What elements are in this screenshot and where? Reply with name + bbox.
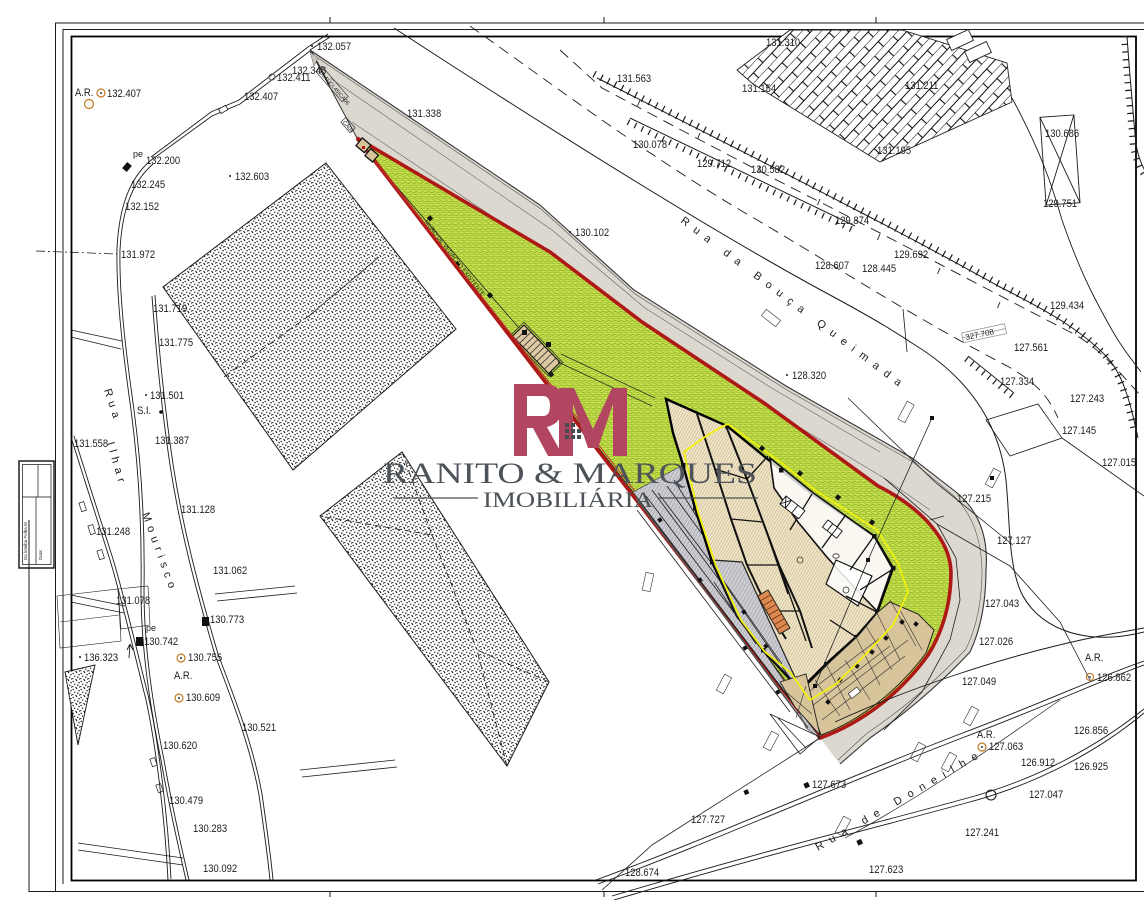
svg-text:132.152: 132.152 xyxy=(125,201,159,213)
svg-text:132.603: 132.603 xyxy=(235,171,269,183)
svg-text:131.558: 131.558 xyxy=(74,438,108,450)
svg-text:132.200: 132.200 xyxy=(146,155,180,167)
svg-text:131.195: 131.195 xyxy=(877,145,911,157)
svg-text:132.407: 132.407 xyxy=(244,91,278,103)
svg-text:127.049: 127.049 xyxy=(962,676,996,688)
svg-text:A.R.: A.R. xyxy=(75,87,93,99)
svg-text:127.561: 127.561 xyxy=(1014,342,1048,354)
svg-text:127.241: 127.241 xyxy=(965,827,999,839)
svg-text:S.I.: S.I. xyxy=(137,405,151,417)
svg-text:Da loteiba Folha M: Da loteiba Folha M xyxy=(23,522,28,560)
svg-text:126.925: 126.925 xyxy=(1074,761,1108,773)
svg-text:131.248: 131.248 xyxy=(96,526,130,538)
svg-text:130.742: 130.742 xyxy=(144,636,178,648)
svg-text:A.R.: A.R. xyxy=(1085,652,1103,664)
svg-text:131.154: 131.154 xyxy=(742,83,776,95)
svg-text:130.521: 130.521 xyxy=(242,722,276,734)
svg-text:132.245: 132.245 xyxy=(131,179,165,191)
svg-text:127.334: 127.334 xyxy=(1000,376,1034,388)
svg-text:131.387: 131.387 xyxy=(155,435,189,447)
svg-text:127.047: 127.047 xyxy=(1029,789,1063,801)
svg-text:A.R.: A.R. xyxy=(977,729,995,741)
svg-text:pe: pe xyxy=(146,623,156,633)
svg-text:127.043: 127.043 xyxy=(985,598,1019,610)
svg-text:130.686: 130.686 xyxy=(1045,128,1079,140)
svg-text:128.320: 128.320 xyxy=(792,370,826,382)
svg-text:131.310: 131.310 xyxy=(766,37,800,49)
svg-text:126.856: 126.856 xyxy=(1074,725,1108,737)
svg-text:129.751: 129.751 xyxy=(1043,198,1077,210)
svg-text:131.062: 131.062 xyxy=(213,565,247,577)
svg-text:132.407: 132.407 xyxy=(107,88,141,100)
svg-text:131.078: 131.078 xyxy=(116,595,150,607)
svg-text:131.128: 131.128 xyxy=(181,504,215,516)
svg-text:129.712: 129.712 xyxy=(697,158,731,170)
svg-text:131.972: 131.972 xyxy=(121,249,155,261)
svg-text:130.102: 130.102 xyxy=(575,227,609,239)
svg-text:128.674: 128.674 xyxy=(625,867,659,879)
svg-text:IMOBILIÁRIA: IMOBILIÁRIA xyxy=(483,487,653,512)
svg-text:pe: pe xyxy=(133,149,143,159)
svg-text:131.719: 131.719 xyxy=(153,303,187,315)
svg-text:130.609: 130.609 xyxy=(186,692,220,704)
svg-text:127.727: 127.727 xyxy=(691,814,725,826)
svg-text:127.015: 127.015 xyxy=(1102,457,1136,469)
svg-text:129.692: 129.692 xyxy=(894,249,928,261)
svg-text:131.775: 131.775 xyxy=(159,337,193,349)
svg-text:126.912: 126.912 xyxy=(1021,757,1055,769)
svg-text:130.092: 130.092 xyxy=(203,863,237,875)
svg-text:127.623: 127.623 xyxy=(869,864,903,876)
svg-text:130.773: 130.773 xyxy=(210,614,244,626)
svg-text:132.411: 132.411 xyxy=(277,72,311,84)
svg-text:130.283: 130.283 xyxy=(193,823,227,835)
svg-text:127.063: 127.063 xyxy=(989,741,1023,753)
svg-text:126.862: 126.862 xyxy=(1097,672,1131,684)
svg-text:Data:: Data: xyxy=(38,549,43,560)
svg-text:128.445: 128.445 xyxy=(862,263,896,275)
svg-text:131.211: 131.211 xyxy=(905,80,939,92)
svg-text:132.057: 132.057 xyxy=(317,41,351,53)
svg-text:127.243: 127.243 xyxy=(1070,393,1104,405)
svg-text:130.620: 130.620 xyxy=(163,740,197,752)
svg-text:127.215: 127.215 xyxy=(957,493,991,505)
svg-text:136.323: 136.323 xyxy=(84,652,118,664)
svg-text:129.874: 129.874 xyxy=(835,215,869,227)
svg-text:A.R.: A.R. xyxy=(174,670,192,682)
svg-text:130.755: 130.755 xyxy=(188,652,222,664)
svg-text:130.582: 130.582 xyxy=(751,164,785,176)
svg-text:129.434: 129.434 xyxy=(1050,300,1084,312)
svg-text:127.127: 127.127 xyxy=(997,535,1031,547)
svg-text:127.026: 127.026 xyxy=(979,636,1013,648)
svg-text:130.078: 130.078 xyxy=(633,139,667,151)
svg-text:128.607: 128.607 xyxy=(815,260,849,272)
svg-text:127.673: 127.673 xyxy=(812,779,846,791)
svg-text:131.338: 131.338 xyxy=(407,108,441,120)
svg-text:131.563: 131.563 xyxy=(617,73,651,85)
svg-text:130.479: 130.479 xyxy=(169,795,203,807)
svg-text:127.145: 127.145 xyxy=(1062,425,1096,437)
svg-text:RANITO & MARQUES: RANITO & MARQUES xyxy=(383,457,757,490)
svg-text:131.501: 131.501 xyxy=(150,390,184,402)
